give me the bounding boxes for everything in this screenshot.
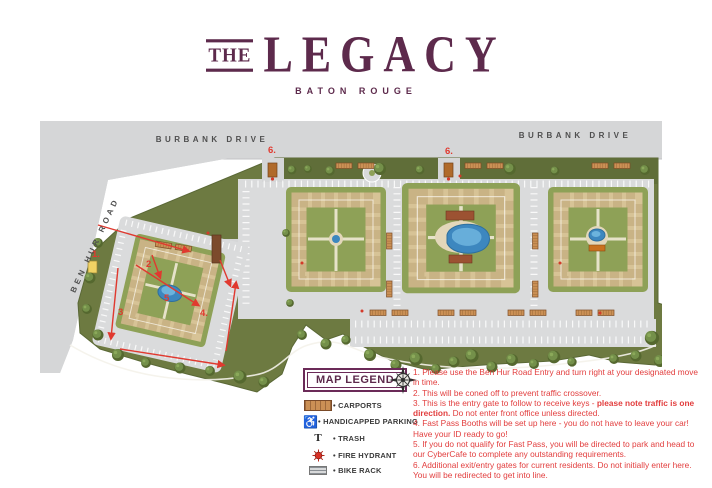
handicapped-icon: ♿ — [303, 416, 318, 428]
burbank-drive-label-right: BURBANK DRIVE — [519, 131, 632, 140]
logo-the: THE — [206, 39, 253, 72]
carport-icon — [304, 400, 332, 411]
building-cluster-2 — [286, 187, 386, 292]
instruction-item-3: 3. This is the entry gate to follow to r… — [413, 398, 705, 419]
legend-item-bike-rack: BIKE RACK — [303, 466, 408, 475]
legend-label: CARPORTS — [333, 401, 382, 410]
fountain-cluster-2 — [332, 235, 340, 243]
move-in-instructions: 1. Please use the Ben Hur Road Entry and… — [413, 367, 705, 480]
logo-legacy: LEGACY — [263, 29, 505, 81]
traffic-marker-3: 3 — [118, 307, 123, 318]
legend-label: BIKE RACK — [333, 466, 382, 475]
traffic-marker-1: 1. — [92, 249, 100, 260]
instruction-item-4: 4. Fast Pass Booths will be set up here … — [413, 418, 705, 439]
instruction-item-2: 2. This will be coned off to prevent tra… — [413, 388, 705, 398]
traffic-marker-2: 2 — [146, 259, 151, 270]
legend-label: TRASH — [333, 434, 365, 443]
building-cluster-4 — [548, 187, 648, 292]
brand-logo: THE LEGACY BATON ROUGE — [0, 33, 712, 96]
legend-item-trash: T TRASH — [303, 432, 408, 444]
burbank-drive-label-left: BURBANK DRIVE — [156, 135, 269, 144]
logo-subtitle: BATON ROUGE — [0, 86, 712, 96]
burbank-road — [40, 121, 662, 159]
traffic-marker-5: 5 — [164, 293, 170, 304]
legend-item-handicapped: ♿ HANDICAPPED PARKING — [303, 416, 408, 428]
legend-item-fire-hydrant: FIRE HYDRANT — [303, 449, 408, 462]
traffic-marker-6a: 6. — [268, 145, 276, 156]
legend-items: CARPORTS ♿ HANDICAPPED PARKING T TRASH F… — [303, 400, 408, 475]
bike-rack-icon — [309, 466, 327, 475]
instruction-item-1: 1. Please use the Ben Hur Road Entry and… — [413, 367, 705, 388]
building-cluster-3 — [402, 183, 520, 293]
logo-lockup: THE LEGACY — [0, 33, 712, 77]
fire-hydrant-icon — [312, 449, 325, 462]
instruction-item-6: 6. Additional exit/entry gates for curre… — [413, 460, 705, 481]
instruction-item-5: 5. If you do not qualify for Fast Pass, … — [413, 439, 705, 460]
legend-label: FIRE HYDRANT — [333, 451, 396, 460]
traffic-marker-6b: 6. — [445, 146, 453, 157]
legend-label: HANDICAPPED PARKING — [318, 417, 418, 426]
trash-icon: T — [314, 432, 321, 444]
traffic-marker-4: 4. — [200, 308, 208, 319]
legend-item-carports: CARPORTS — [303, 400, 408, 411]
flyer-page: { "header": { "the": "THE", "legacy": "L… — [0, 0, 712, 488]
